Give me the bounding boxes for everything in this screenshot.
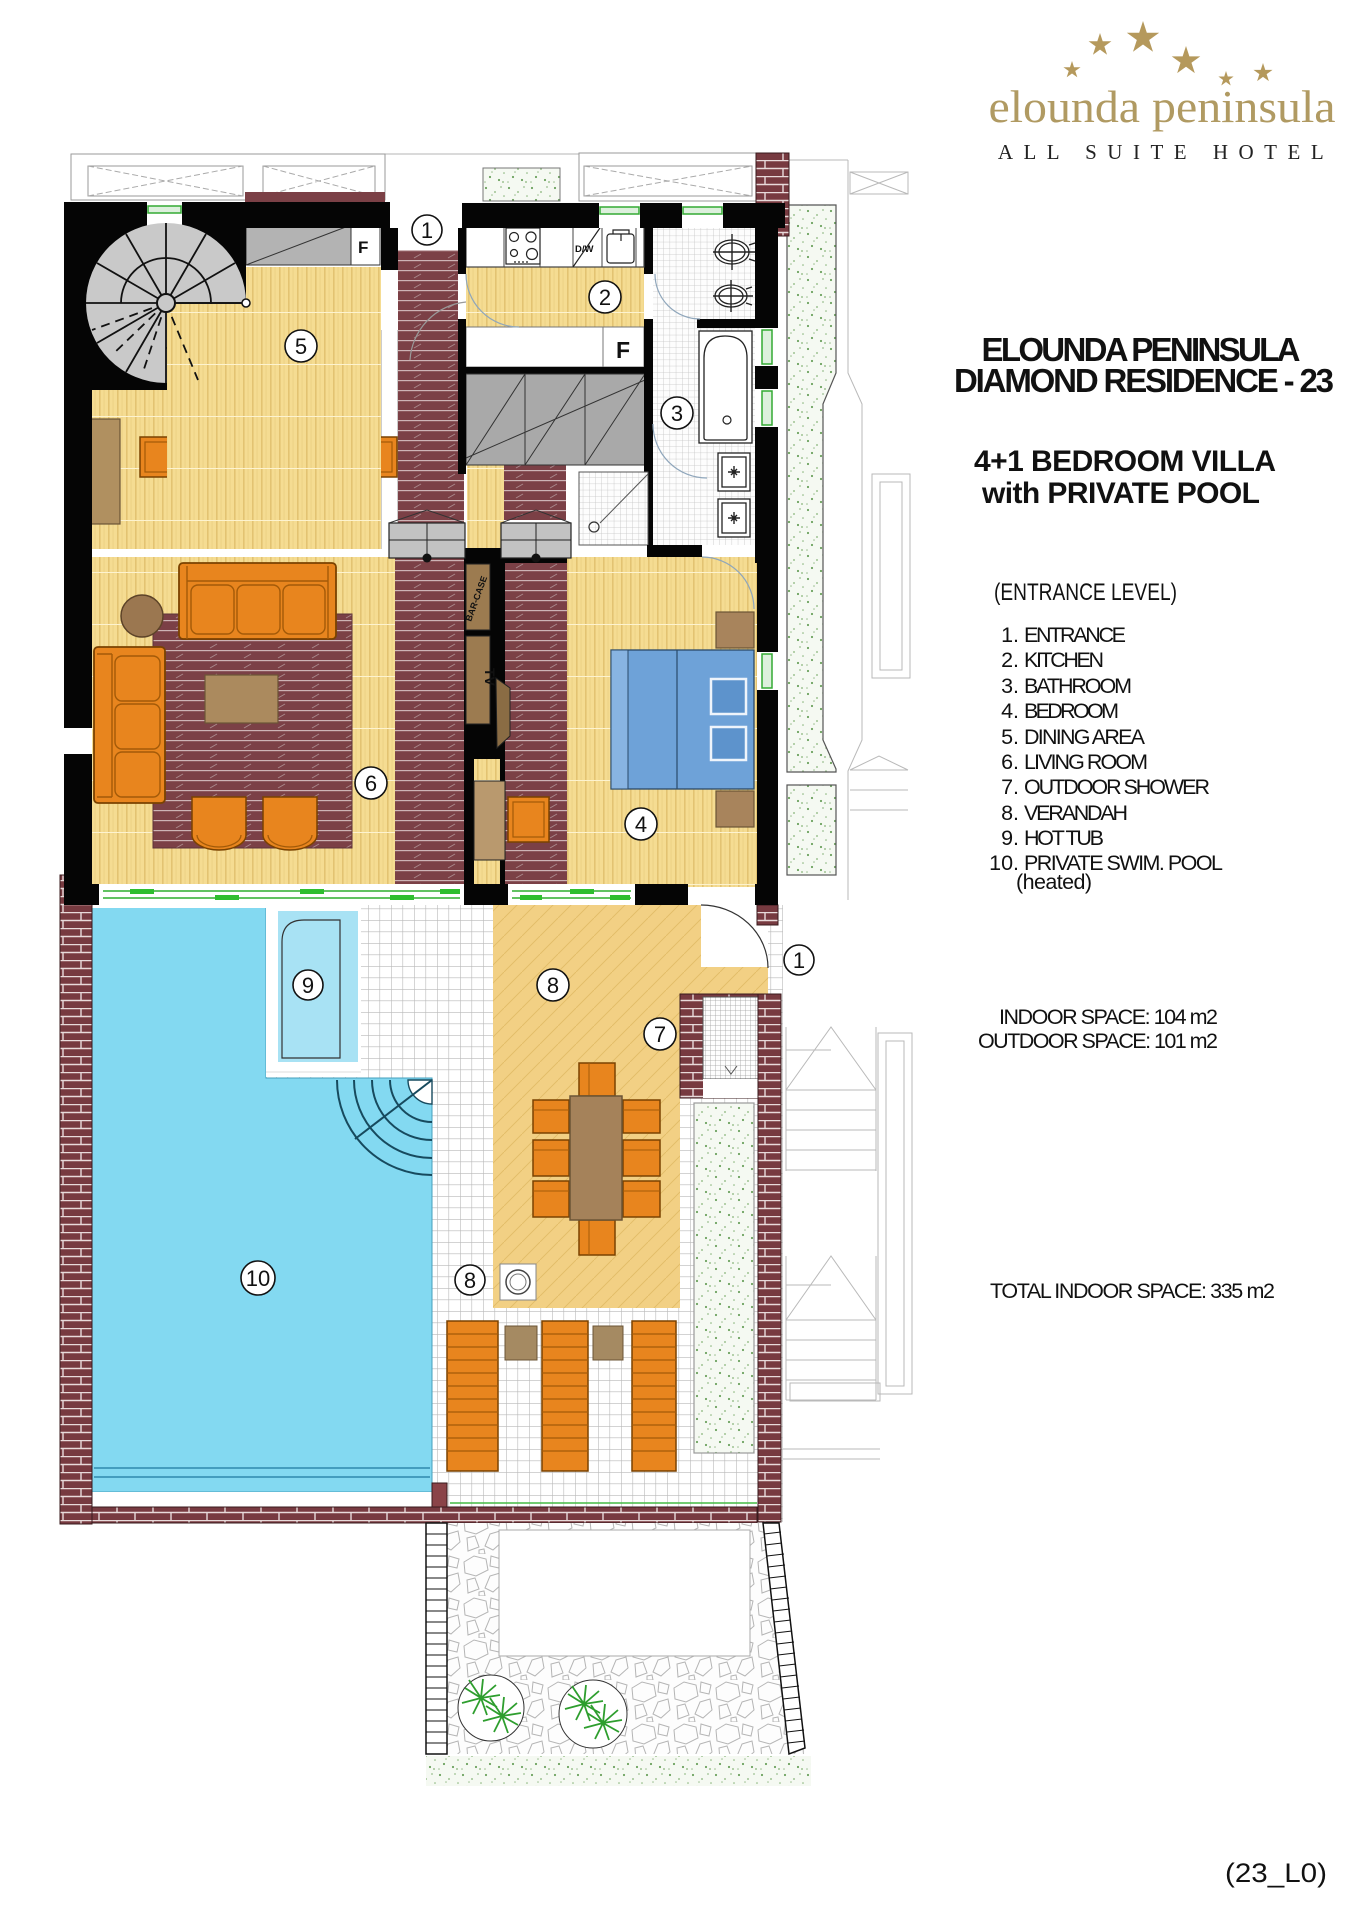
svg-text:ALL SUITE HOTEL: ALL SUITE HOTEL <box>998 140 1334 164</box>
svg-text:1: 1 <box>793 948 805 973</box>
svg-text:4.: 4. <box>1001 699 1019 723</box>
svg-text:TOTAL INDOOR SPACE: 335 m2: TOTAL INDOOR SPACE: 335 m2 <box>990 1279 1275 1303</box>
svg-text:3.: 3. <box>1001 674 1019 698</box>
svg-text:BEDROOM: BEDROOM <box>1024 699 1119 723</box>
svg-text:with PRIVATE POOL: with PRIVATE POOL <box>981 477 1260 510</box>
svg-text:4+1 BEDROOM VILLA: 4+1 BEDROOM VILLA <box>974 445 1276 478</box>
svg-text:1.: 1. <box>1001 623 1019 647</box>
svg-text:(23_L0): (23_L0) <box>1225 1858 1327 1888</box>
svg-text:elounda peninsula: elounda peninsula <box>989 81 1336 132</box>
svg-text:TV: TV <box>482 668 498 687</box>
svg-text:BATHROOM: BATHROOM <box>1024 674 1132 698</box>
svg-text:OUTDOOR SPACE: 101 m2: OUTDOOR SPACE: 101 m2 <box>978 1029 1218 1053</box>
svg-text:KITCHEN: KITCHEN <box>1024 648 1104 672</box>
svg-text:(ENTRANCE LEVEL): (ENTRANCE LEVEL) <box>994 579 1177 606</box>
svg-text:F: F <box>616 337 630 363</box>
svg-text:OUTDOOR SHOWER: OUTDOOR SHOWER <box>1024 775 1210 799</box>
svg-text:7.: 7. <box>1001 775 1019 799</box>
svg-text:VERANDAH: VERANDAH <box>1024 801 1128 825</box>
svg-text:4: 4 <box>635 812 647 837</box>
svg-text:2: 2 <box>599 285 611 310</box>
svg-text:1: 1 <box>421 218 433 243</box>
svg-text:8: 8 <box>547 973 559 998</box>
svg-text:6.: 6. <box>1001 750 1019 774</box>
svg-text:2.: 2. <box>1001 648 1019 672</box>
svg-text:ENTRANCE: ENTRANCE <box>1024 623 1126 647</box>
svg-text:10: 10 <box>246 1266 270 1291</box>
svg-text:3: 3 <box>671 401 683 426</box>
svg-text:DINING AREA: DINING AREA <box>1024 725 1146 749</box>
svg-text:LIVING ROOM: LIVING ROOM <box>1024 750 1148 774</box>
svg-text:HOT TUB: HOT TUB <box>1024 826 1104 850</box>
svg-text:DIAMOND RESIDENCE - 23: DIAMOND RESIDENCE - 23 <box>954 362 1334 399</box>
svg-text:9: 9 <box>302 973 314 998</box>
svg-text:10.: 10. <box>989 851 1019 875</box>
svg-text:D/W: D/W <box>575 244 594 255</box>
svg-text:F: F <box>358 238 368 257</box>
svg-text:(heated): (heated) <box>1016 870 1092 894</box>
svg-text:8.: 8. <box>1001 801 1019 825</box>
svg-text:INDOOR SPACE: 104 m2: INDOOR SPACE: 104 m2 <box>999 1005 1218 1029</box>
svg-text:5: 5 <box>295 334 307 359</box>
svg-text:9.: 9. <box>1001 826 1019 850</box>
svg-text:6: 6 <box>365 771 377 796</box>
svg-text:7: 7 <box>654 1022 666 1047</box>
svg-text:8: 8 <box>464 1268 476 1293</box>
svg-text:5.: 5. <box>1001 725 1019 749</box>
